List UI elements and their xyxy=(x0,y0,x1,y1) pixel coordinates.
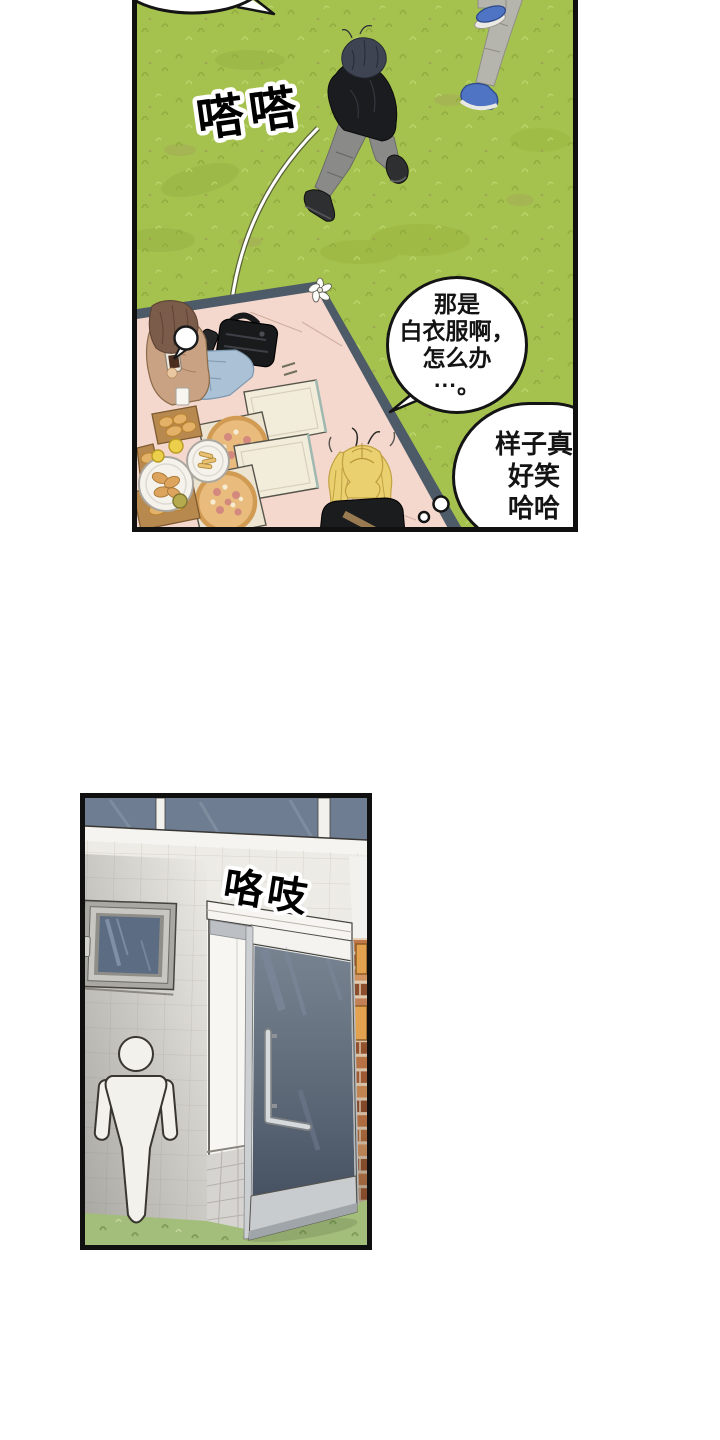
speech-bubble: 那是 白衣服啊， 怎么办 ···。 xyxy=(386,276,528,414)
window-mullion xyxy=(156,798,165,830)
window-mullion xyxy=(318,798,330,839)
food-plate xyxy=(187,440,229,482)
comic-page: 嗒嗒 那是 白衣服啊， 怎么办 ···。 样子真 好笑 哈哈 xyxy=(0,0,720,1440)
lit-window xyxy=(354,1006,367,1040)
panel-park-scene: 嗒嗒 那是 白衣服啊， 怎么办 ···。 样子真 好笑 哈哈 xyxy=(132,0,578,532)
entrance-door xyxy=(244,925,357,1240)
thought-bubble-text: 样子真 好笑 哈哈 xyxy=(495,428,573,525)
lemon-slice xyxy=(152,450,164,462)
speech-bubble-text: 那是 白衣服啊， 怎么办 ···。 xyxy=(400,291,515,400)
small-window xyxy=(85,900,176,994)
window-handle xyxy=(85,936,90,956)
pickle-dish xyxy=(173,494,187,508)
panel-restroom-scene: 咯吱 xyxy=(80,793,372,1250)
lit-window xyxy=(356,944,367,974)
restroom-artwork: 咯吱 xyxy=(85,798,367,1245)
door-left-stile xyxy=(244,926,253,1239)
lemon-slice xyxy=(169,439,183,453)
doorway-interior xyxy=(207,905,250,1236)
paper-cup xyxy=(176,388,189,405)
